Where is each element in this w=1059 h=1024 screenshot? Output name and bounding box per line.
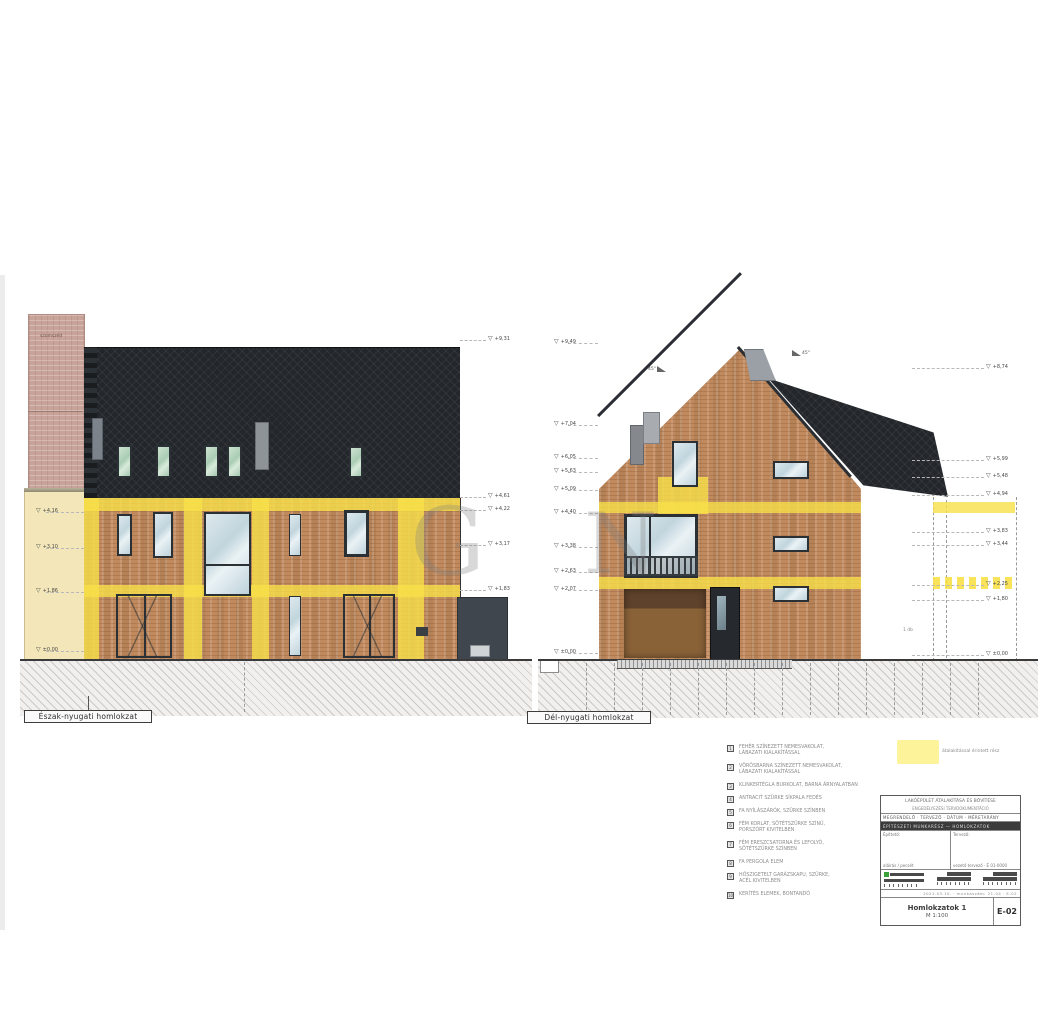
level-value: +8,74: [993, 365, 1008, 370]
scale-green-square: [884, 872, 889, 877]
level-value: +4,40: [561, 510, 576, 515]
level-triangle-icon: ▽: [554, 568, 559, 574]
foundation-pile-line: [866, 663, 867, 715]
legend-item-text: HŐSZIGETELT GARÁZSKAPU, SZÜRKE,ACÉL KIVI…: [739, 873, 830, 886]
level-marker-sw-left: ▽+6,05: [554, 454, 576, 460]
scale-tick: [1010, 882, 1011, 885]
level-value: ±0,00: [993, 652, 1008, 657]
legend-item: 9HŐSZIGETELT GARÁZSKAPU, SZÜRKE,ACÉL KIV…: [727, 873, 902, 886]
sw-slot-window: [773, 536, 809, 552]
nw-roof-window: [204, 445, 219, 478]
nw-highlight-strip: [184, 498, 202, 660]
foundation-pile-line: [726, 663, 727, 715]
level-value: +3,38: [561, 544, 576, 549]
nw-roof: [84, 347, 460, 499]
scale-tick: [946, 882, 947, 885]
level-marker-nw-right: ▽+9,31: [488, 336, 510, 342]
scale-tick: [964, 882, 965, 885]
sw-slot-window: [773, 461, 809, 479]
sw-porch: [624, 589, 706, 658]
neighbor-note: szomszéd: [40, 334, 62, 339]
level-triangle-icon: ▽: [986, 528, 991, 534]
scale-bar: [993, 872, 1017, 876]
foundation-pile-line: [950, 663, 951, 715]
level-value: +6,05: [561, 455, 576, 460]
level-marker-nw-left: ▽+3,10: [36, 544, 58, 550]
level-value: +2,07: [561, 587, 576, 592]
scale-bar: [947, 872, 971, 876]
level-triangle-icon: ▽: [36, 647, 41, 653]
scale-tick: [911, 884, 912, 887]
foundation-pile-line: [614, 663, 615, 715]
foundation-pile-line: [586, 663, 587, 715]
level-triangle-icon: ▽: [986, 491, 991, 497]
level-triangle-icon: ▽: [554, 339, 559, 345]
scale-ticks: [983, 882, 1017, 885]
level-triangle-icon: ▽: [554, 543, 559, 549]
level-marker-sw-right: ▽+5,48: [986, 473, 1008, 479]
scale-tick: [902, 884, 903, 887]
title-block-bottom: Homlokzatok 1 M 1:100 E-02: [881, 898, 1020, 925]
level-marker-sw-left: ▽+5,09: [554, 486, 576, 492]
legend-item-text: FEHÉR SZÍNEZETT NEMESVAKOLAT,LÁBAZATI KI…: [739, 745, 824, 758]
nw-door: [289, 596, 301, 656]
level-marker-sw-left: ▽+2,07: [554, 586, 576, 592]
level-value: +3,17: [495, 542, 510, 547]
sw-slot-window: [773, 586, 809, 602]
legend-number-icon: 4: [727, 796, 734, 803]
nw-window: [289, 514, 301, 556]
title-block-info-row: MEGRENDELŐ · TERVEZŐ · DÁTUM · MÉRETARÁN…: [881, 814, 1020, 822]
scale-bar: [884, 879, 924, 883]
scale-tick: [1006, 882, 1007, 885]
title-block: LAKÓÉPÜLET ÁTALAKÍTÁSA ÉS BŐVÍTÉSE ENGED…: [880, 795, 1021, 926]
neighbor-building: [28, 314, 85, 492]
level-triangle-icon: ▽: [554, 649, 559, 655]
level-triangle-icon: ▽: [36, 508, 41, 514]
nw-ground: [20, 659, 532, 716]
designer-lines: vezető tervező · É 01-0000: [953, 863, 1018, 868]
level-triangle-icon: ▽: [986, 651, 991, 657]
foundation-pile-line: [670, 663, 671, 715]
level-leader-line-sw-right: [912, 545, 984, 546]
nw-window-large: [343, 594, 395, 658]
nw-annex-vent: [470, 645, 490, 657]
level-marker-nw-right: ▽+4,61: [488, 493, 510, 499]
level-marker-sw-right: ▽+4,94: [986, 491, 1008, 497]
level-value: +9,31: [495, 337, 510, 342]
scale-bar: [983, 877, 1017, 881]
level-leader-line-sw-right: [912, 655, 984, 656]
legend-item: 10KERÍTÉS ELEMEK, BONTANDÓ: [727, 892, 902, 899]
sheet-code: E-02: [993, 898, 1020, 925]
scale-tick: [955, 882, 956, 885]
level-leader-line-nw-right: [460, 590, 486, 591]
level-marker-sw-right: ▽+3,44: [986, 541, 1008, 547]
sw-elevation-label: Dél-nyugati homlokzat: [527, 711, 651, 724]
level-triangle-icon: ▽: [554, 486, 559, 492]
level-triangle-icon: ▽: [986, 541, 991, 547]
legend-item-text: FA PERGOLA ELEM: [739, 860, 783, 866]
nw-highlight-strip: [84, 498, 99, 660]
nw-highlight-strip: [252, 498, 269, 660]
level-value: +5,09: [561, 487, 576, 492]
foundation-pile-line: [642, 663, 643, 715]
legend-item: 6FÉM KORLÁT, SÖTÉTSZÜRKE SZÍNŰ,PORSZÓRT …: [727, 822, 902, 835]
legend-item-text: KLINKERTÉGLA BURKOLAT, BARNA ÁRNYALATBAN: [739, 783, 858, 789]
legend-item-text: FA NYÍLÁSZÁRÓK, SZÜRKE SZÍNBEN: [739, 809, 825, 815]
level-marker-sw-left: ▽+9,49: [554, 339, 576, 345]
foundation-pile-line: [838, 663, 839, 715]
scale-tick: [950, 882, 951, 885]
level-triangle-icon: ▽: [554, 509, 559, 515]
level-marker-nw-left: ▽±0,00: [36, 647, 58, 653]
level-value: +5,99: [993, 457, 1008, 462]
scale-tick: [893, 884, 894, 887]
level-marker-sw-right: ▽+3,83: [986, 528, 1008, 534]
level-leader-line-nw-right: [460, 545, 486, 546]
sw-pitch-symbol-left: 45°: [648, 366, 666, 372]
level-value: +1,80: [993, 597, 1008, 602]
pitch-value: 45°: [802, 351, 810, 356]
nw-roof-window: [227, 445, 242, 478]
level-value: ±0,00: [43, 648, 58, 653]
nw-wall-sign: [416, 627, 428, 636]
scale-tick: [968, 882, 969, 885]
level-leader-line-nw-right: [460, 497, 486, 498]
nw-label-leader: [88, 696, 89, 711]
pitch-triangle-icon: [657, 366, 666, 372]
nw-elevation-label-text: Észak-nyugati homlokzat: [39, 712, 138, 721]
scale-bar-group: [983, 872, 1017, 887]
scale-tick: [907, 884, 908, 887]
level-triangle-icon: ▽: [554, 468, 559, 474]
title-block-designer-col: Tervező: vezető tervező · É 01-0000: [950, 831, 1020, 869]
level-marker-sw-right: ▽+5,99: [986, 456, 1008, 462]
level-leader-line-sw-right: [912, 532, 984, 533]
nw-window: [117, 514, 132, 556]
scale-tick: [992, 882, 993, 885]
legend-item-text: FÉM KORLÁT, SÖTÉTSZÜRKE SZÍNŰ,PORSZÓRT K…: [739, 822, 825, 835]
foundation-pile-line: [782, 663, 783, 715]
sw-balcony-railing: [624, 556, 698, 576]
foundation-pile-line: [922, 663, 923, 715]
level-marker-sw-right: ▽+1,80: [986, 596, 1008, 602]
scale-tick: [916, 884, 917, 887]
legend-number-icon: 6: [727, 822, 734, 829]
level-leader-line-sw-right: [912, 460, 984, 461]
scale-ticks: [937, 882, 971, 885]
level-value: +5,63: [561, 469, 576, 474]
level-leader-line-sw-right: [912, 585, 984, 586]
level-leader-line-nw-right: [460, 340, 486, 341]
scale-tick: [937, 882, 938, 885]
door-glazing: [717, 596, 726, 630]
level-triangle-icon: ▽: [554, 586, 559, 592]
level-triangle-icon: ▽: [488, 541, 493, 547]
legend-item: 2VÖRÖSBARNA SZÍNEZETT NEMESVAKOLAT,LÁBAZ…: [727, 764, 902, 777]
level-value: +5,48: [993, 474, 1008, 479]
level-triangle-icon: ▽: [554, 454, 559, 460]
legend-item-text: VÖRÖSBARNA SZÍNEZETT NEMESVAKOLAT,LÁBAZA…: [739, 764, 842, 777]
level-marker-nw-right: ▽+4,22: [488, 506, 510, 512]
legend-item: 1FEHÉR SZÍNEZETT NEMESVAKOLAT,LÁBAZATI K…: [727, 745, 902, 758]
sheet-scale: M 1:100: [926, 913, 948, 919]
client-lines: aláírás / pecsét: [883, 863, 948, 868]
scale-tick: [1015, 882, 1016, 885]
sw-chimney-left: [630, 425, 644, 465]
legend-highlight-swatch: [897, 740, 939, 764]
nw-roof-hatch-strip: [92, 418, 103, 460]
title-block-header: LAKÓÉPÜLET ÁTALAKÍTÁSA ÉS BŐVÍTÉSE ENGED…: [881, 796, 1020, 814]
sw-elevation-label-text: Dél-nyugati homlokzat: [544, 713, 633, 722]
title-block-numbers-row: 2021.03.10. · munkaszám: 21-04 · E-02: [881, 890, 1020, 898]
sw-terrace-strip: [617, 660, 792, 669]
level-leader-line-nw-right: [460, 510, 486, 511]
level-triangle-icon: ▽: [554, 421, 559, 427]
project-title: LAKÓÉPÜLET ÁTALAKÍTÁSA ÉS BŐVÍTÉSE: [883, 799, 1018, 804]
scale-tick: [988, 882, 989, 885]
level-marker-sw-left: ▽+7,04: [554, 421, 576, 427]
nw-window-large: [116, 594, 172, 658]
level-marker-nw-left: ▽+1,86: [36, 588, 58, 594]
scale-bar: [890, 873, 924, 877]
scale-bar-group: [937, 872, 971, 887]
scale-tick: [1001, 882, 1002, 885]
title-block-client-col: Építtető: aláírás / pecsét: [881, 831, 950, 869]
scale-tick: [884, 884, 885, 887]
legend-number-icon: 10: [727, 892, 734, 899]
sw-entry-door: [710, 587, 740, 661]
nw-roof-window: [349, 446, 363, 478]
legend-item-text: ANTRACIT SZÜRKE SÍKPALA FEDÉS: [739, 796, 822, 802]
level-value: +3,10: [43, 545, 58, 550]
level-marker-nw-right: ▽+3,17: [488, 541, 510, 547]
foundation-pile-line: [978, 663, 979, 715]
designer-label: Tervező:: [953, 832, 1018, 837]
level-triangle-icon: ▽: [986, 596, 991, 602]
sw-attic-window: [672, 441, 698, 487]
scale-tick: [889, 884, 890, 887]
level-value: ±0,00: [561, 650, 576, 655]
legend-item: 8FA PERGOLA ELEM: [727, 860, 902, 867]
foundation-pile-line: [698, 663, 699, 715]
legend-number-icon: 2: [727, 764, 734, 771]
level-triangle-icon: ▽: [488, 336, 493, 342]
level-marker-sw-left: ▽+3,38: [554, 543, 576, 549]
foundation-pile-line: [810, 663, 811, 715]
level-value: +9,49: [561, 340, 576, 345]
sw-chimney-left-cap: [643, 412, 660, 444]
level-value: +4,61: [495, 494, 510, 499]
sheet-title-cell: Homlokzatok 1 M 1:100: [881, 898, 993, 925]
neighbor-lower-wall: [24, 492, 85, 660]
nw-roof-window: [156, 445, 171, 478]
pitch-value: 45°: [648, 367, 656, 372]
level-triangle-icon: ▽: [986, 473, 991, 479]
level-leader-line-sw-right: [912, 368, 984, 369]
legend-number-icon: 3: [727, 783, 734, 790]
legend-number-icon: 7: [727, 841, 734, 848]
level-marker-nw-left: ▽+4,16: [36, 508, 58, 514]
nw-window: [153, 512, 173, 558]
legend-item: 3KLINKERTÉGLA BURKOLAT, BARNA ÁRNYALATBA…: [727, 783, 902, 790]
scale-ticks: [884, 884, 924, 887]
nw-elevation-label: Észak-nyugati homlokzat: [24, 710, 152, 723]
level-triangle-icon: ▽: [488, 493, 493, 499]
legend-swatch-label: átalakítással érintett rész: [942, 749, 999, 754]
title-block-dark-band: ÉPÍTÉSZETI MUNKARÉSZ — HOMLOKZATOK: [881, 822, 1020, 831]
level-marker-sw-left: ▽+5,63: [554, 468, 576, 474]
level-value: +4,16: [43, 509, 58, 514]
level-value: +2,25: [993, 582, 1008, 587]
level-marker-sw-left: ▽+2,63: [554, 568, 576, 574]
level-leader-line-sw-right: [912, 477, 984, 478]
sw-highlight-band-upper-right: [933, 502, 1015, 513]
legend-item: 5FA NYÍLÁSZÁRÓK, SZÜRKE SZÍNBEN: [727, 809, 902, 816]
nw-window-tall: [204, 512, 251, 596]
level-value: +4,22: [495, 507, 510, 512]
scale-tick: [898, 884, 899, 887]
sheet-title: Homlokzatok 1: [908, 904, 967, 912]
drawing-sheet: szomszéd: [0, 0, 1059, 1024]
level-triangle-icon: ▽: [986, 581, 991, 587]
level-marker-sw-left: ▽±0,00: [554, 649, 576, 655]
level-value: +4,94: [993, 492, 1008, 497]
level-value: +7,04: [561, 422, 576, 427]
sw-pitch-symbol-right: 45°: [792, 350, 810, 356]
sw-highlight-band-upper: [599, 502, 861, 513]
title-block-scale-bars: [881, 870, 1020, 890]
level-value: +2,63: [561, 569, 576, 574]
level-marker-nw-right: ▽+1,83: [488, 586, 510, 592]
level-marker-sw-right: ▽+8,74: [986, 364, 1008, 370]
page-edge: [0, 275, 5, 930]
level-value: +3,83: [993, 529, 1008, 534]
project-subtitle: ENGEDÉLYEZÉSI TERVDOKUMENTÁCIÓ: [883, 806, 1018, 811]
legend-number-icon: 8: [727, 860, 734, 867]
nw-chimney: [255, 422, 269, 470]
level-value: +1,83: [495, 587, 510, 592]
level-triangle-icon: ▽: [488, 506, 493, 512]
level-marker-sw-right: ▽±0,00: [986, 651, 1008, 657]
legend: 1FEHÉR SZÍNEZETT NEMESVAKOLAT,LÁBAZATI K…: [727, 745, 902, 899]
level-marker-sw-right: ▽+2,25: [986, 581, 1008, 587]
scale-bar-group: [884, 872, 924, 887]
foundation-pile-line: [754, 663, 755, 715]
scale-bar: [937, 877, 971, 881]
nw-window: [344, 510, 369, 557]
legend-item: 7FÉM ERESZCSATORNA ÉS LEFOLYÓ,SÖTÉTSZÜRK…: [727, 841, 902, 854]
client-label: Építtető:: [883, 832, 948, 837]
level-triangle-icon: ▽: [36, 544, 41, 550]
legend-item: 4ANTRACIT SZÜRKE SÍKPALA FEDÉS: [727, 796, 902, 803]
legend-number-icon: 9: [727, 873, 734, 880]
scale-tick: [959, 882, 960, 885]
legend-item-text: KERÍTÉS ELEMEK, BONTANDÓ: [739, 892, 810, 898]
sw-ground-step: [540, 661, 559, 673]
legend-item-text: FÉM ERESZCSATORNA ÉS LEFOLYÓ,SÖTÉTSZÜRKE…: [739, 841, 824, 854]
level-triangle-icon: ▽: [36, 588, 41, 594]
foundation-pile-line: [894, 663, 895, 715]
scale-tick: [983, 882, 984, 885]
scale-tick: [997, 882, 998, 885]
level-value: +3,44: [993, 542, 1008, 547]
title-block-columns: Építtető: aláírás / pecsét Tervező: veze…: [881, 831, 1020, 870]
neighbor-divider-line: [28, 411, 83, 412]
level-leader-line-sw-right: [912, 495, 984, 496]
pitch-triangle-icon: [792, 350, 801, 356]
level-leader-line-sw-right: [912, 600, 984, 601]
sw-wall-note: 1 db: [903, 628, 913, 633]
nw-roof-window: [117, 445, 132, 478]
level-triangle-icon: ▽: [986, 364, 991, 370]
level-triangle-icon: ▽: [986, 456, 991, 462]
level-value: +1,86: [43, 589, 58, 594]
legend-number-icon: 5: [727, 809, 734, 816]
level-marker-sw-left: ▽+4,40: [554, 509, 576, 515]
nw-foundation-line: [244, 662, 245, 712]
scale-tick: [941, 882, 942, 885]
level-triangle-icon: ▽: [488, 586, 493, 592]
legend-number-icon: 1: [727, 745, 734, 752]
